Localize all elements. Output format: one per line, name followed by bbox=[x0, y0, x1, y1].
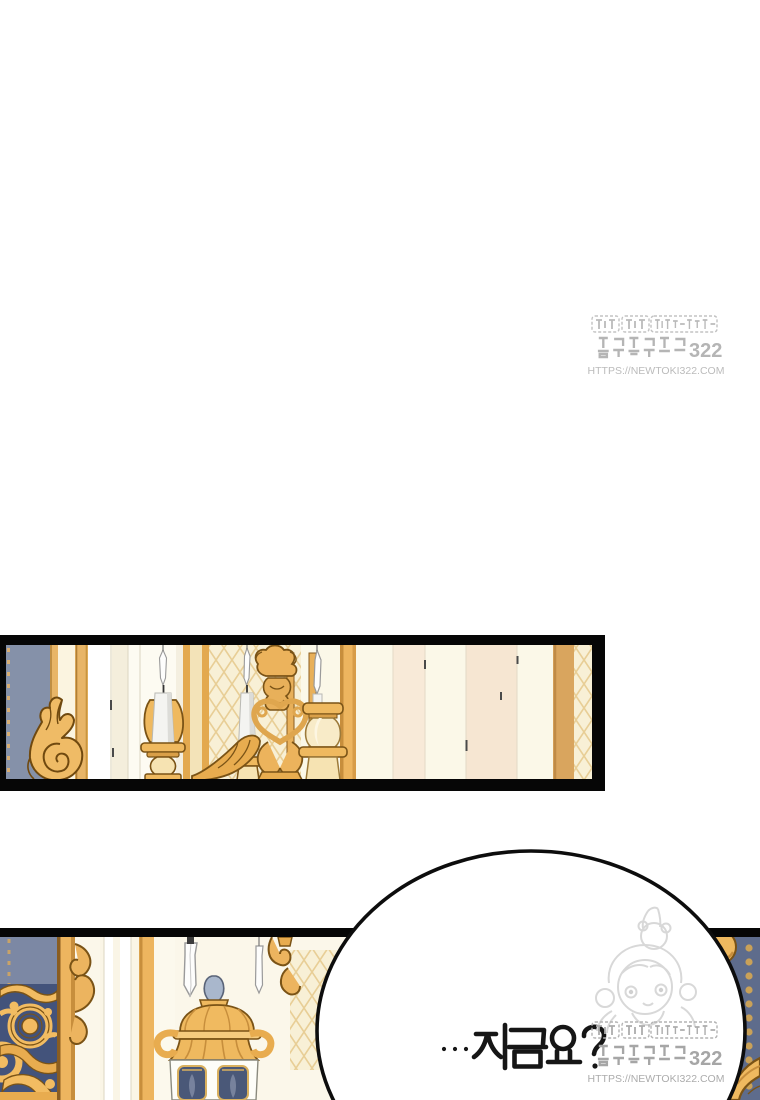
svg-text:HTTPS://NEWTOKI322.COM: HTTPS://NEWTOKI322.COM bbox=[588, 1073, 725, 1085]
svg-text:322: 322 bbox=[689, 340, 722, 362]
svg-text:322: 322 bbox=[689, 1048, 722, 1070]
svg-text:HTTPS://NEWTOKI322.COM: HTTPS://NEWTOKI322.COM bbox=[588, 365, 725, 377]
